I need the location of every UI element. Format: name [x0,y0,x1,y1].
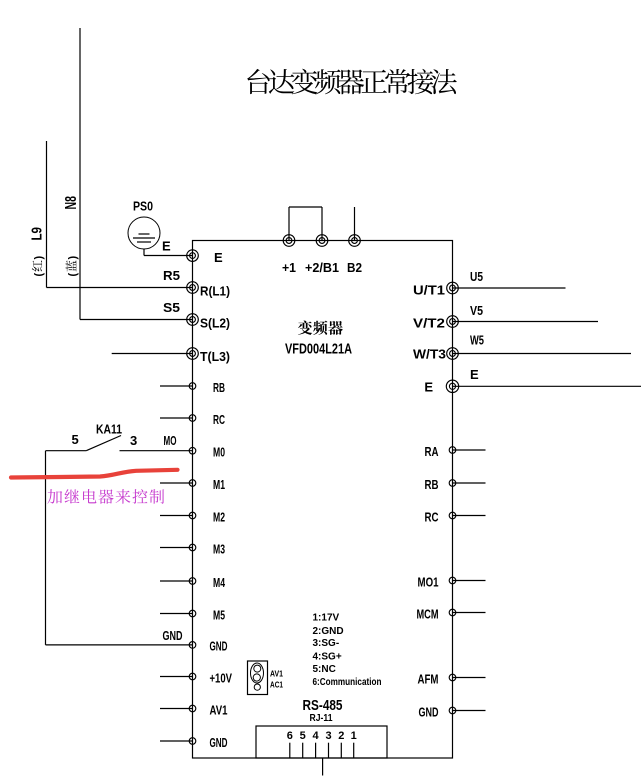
svg-text:W/T3: W/T3 [413,347,446,362]
svg-text:AV1: AV1 [270,669,283,679]
svg-text:KA11: KA11 [96,422,122,437]
svg-text:M5: M5 [213,607,225,622]
svg-text:N8: N8 [63,196,80,210]
svg-text:GND: GND [419,704,439,719]
svg-text:): ) [33,256,45,260]
svg-text:U/T1: U/T1 [413,283,445,298]
svg-text:3:SG-: 3:SG- [313,638,340,649]
svg-text:M4: M4 [213,575,226,590]
svg-text:M3: M3 [213,541,225,556]
svg-text:RA: RA [425,444,439,459]
svg-text:RC: RC [213,412,225,427]
svg-text:RB: RB [425,477,439,492]
svg-text:T(L3): T(L3) [200,349,230,364]
svg-text:2: 2 [338,730,344,742]
svg-text:AC1: AC1 [270,680,283,690]
svg-text:VFD004L21A: VFD004L21A [285,342,352,358]
svg-text:V5: V5 [470,303,483,318]
svg-text:RJ-11: RJ-11 [310,712,333,724]
svg-text:+2/B1: +2/B1 [305,260,339,275]
svg-text:6:Communication: 6:Communication [313,677,382,688]
svg-text:5: 5 [72,432,79,447]
svg-text:(: ( [67,273,79,277]
svg-text:R(L1): R(L1) [200,284,230,299]
svg-text:+10V: +10V [210,670,233,685]
svg-text:AFM: AFM [418,671,439,686]
svg-text:E: E [470,367,479,382]
svg-text:E: E [214,250,223,265]
svg-text:B2: B2 [347,260,362,275]
svg-text:4:SG+: 4:SG+ [313,651,342,662]
svg-text:5:NC: 5:NC [313,664,336,675]
svg-text:MO1: MO1 [418,574,439,589]
svg-text:R5: R5 [163,268,180,283]
svg-text:GND: GND [163,628,183,643]
svg-text:3: 3 [325,730,331,742]
svg-text:M0: M0 [213,445,225,460]
svg-text:S5: S5 [163,300,180,315]
svg-text:RB: RB [213,380,225,395]
svg-text:1: 1 [351,730,357,742]
svg-text:E: E [424,380,433,395]
svg-text:1:17V: 1:17V [313,613,340,624]
svg-text:GND: GND [210,735,228,750]
svg-text:RC: RC [425,509,439,524]
svg-text:+1: +1 [282,260,296,275]
svg-text:2:GND: 2:GND [313,626,344,637]
svg-text:5: 5 [300,730,306,742]
svg-text:MO: MO [164,433,177,448]
svg-text:3: 3 [130,433,137,448]
svg-text:AV1: AV1 [210,702,228,717]
svg-text:MCM: MCM [417,606,439,621]
svg-text:U5: U5 [470,269,483,284]
svg-text:GND: GND [210,639,228,654]
svg-text:V/T2: V/T2 [413,316,445,331]
svg-text:4: 4 [313,730,320,742]
svg-text:S(L2): S(L2) [200,316,230,331]
svg-text:W5: W5 [470,333,484,348]
svg-text:M2: M2 [213,509,225,524]
svg-text:): ) [67,256,79,260]
svg-text:PS0: PS0 [133,199,153,214]
svg-text:M1: M1 [213,477,225,492]
svg-text:E: E [162,239,171,254]
svg-text:6: 6 [287,730,293,742]
svg-text:L9: L9 [29,227,46,241]
svg-text:(: ( [33,273,45,277]
